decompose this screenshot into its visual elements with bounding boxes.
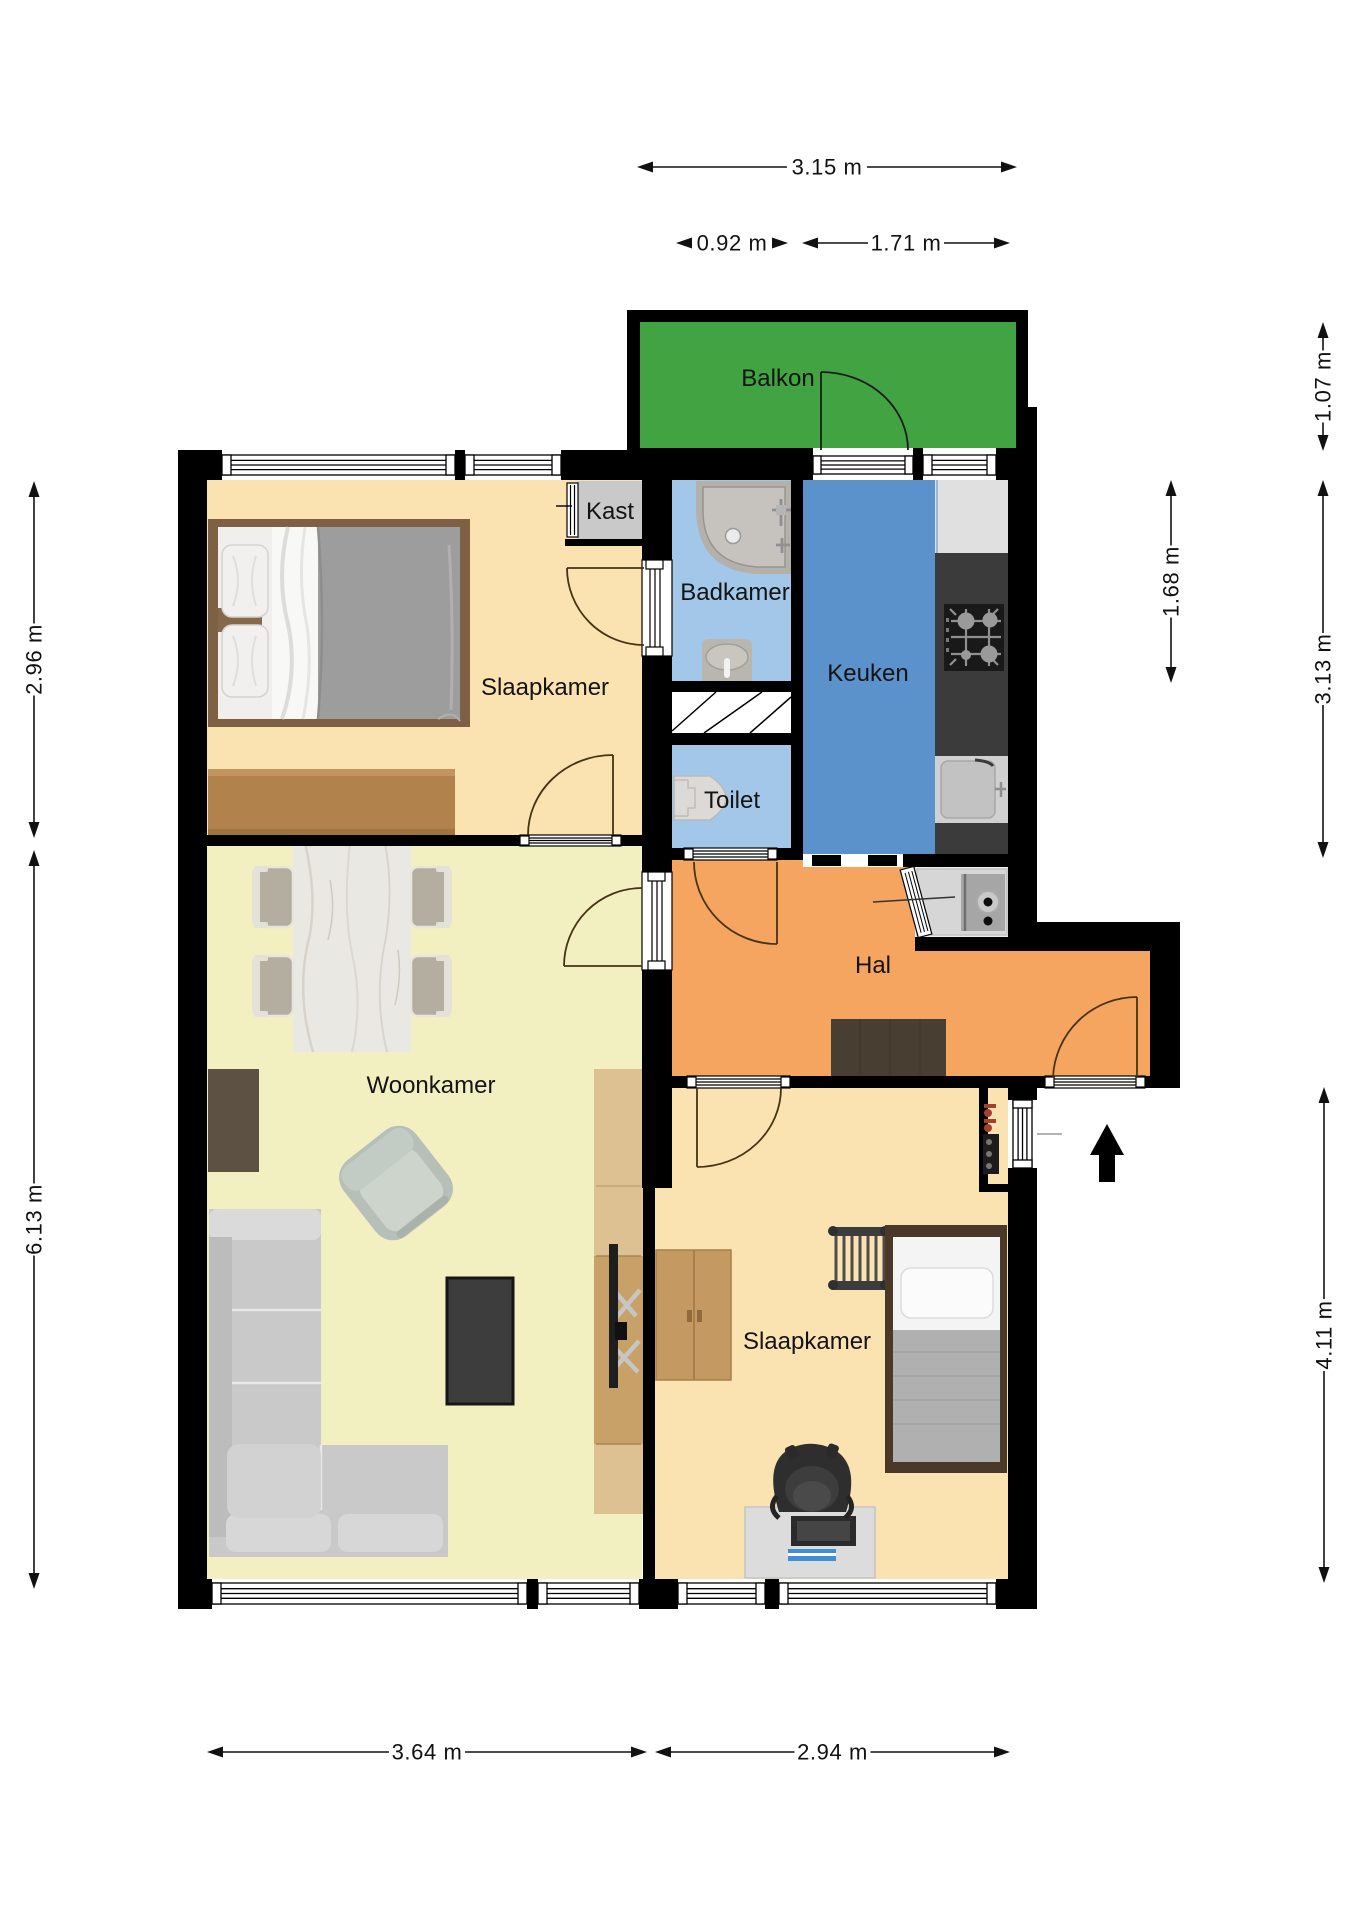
svg-text:2.96 m: 2.96 m — [22, 624, 47, 695]
svg-text:Hal: Hal — [855, 952, 891, 979]
svg-text:1.71 m: 1.71 m — [871, 231, 942, 256]
svg-text:Slaapkamer: Slaapkamer — [743, 1328, 871, 1355]
svg-text:4.11 m: 4.11 m — [1312, 1300, 1337, 1369]
svg-text:3.15 m: 3.15 m — [792, 155, 863, 180]
svg-text:Balkon: Balkon — [741, 365, 814, 392]
svg-text:Slaapkamer: Slaapkamer — [481, 674, 609, 701]
svg-text:Toilet: Toilet — [704, 787, 760, 814]
svg-text:0.92 m: 0.92 m — [697, 231, 768, 256]
svg-text:Keuken: Keuken — [827, 660, 908, 687]
svg-text:3.64 m: 3.64 m — [392, 1740, 463, 1765]
svg-text:3.13 m: 3.13 m — [1311, 634, 1336, 705]
svg-text:Kast: Kast — [586, 498, 634, 525]
svg-text:1.68 m: 1.68 m — [1159, 546, 1184, 617]
svg-text:1.07 m: 1.07 m — [1311, 351, 1336, 422]
svg-text:Woonkamer: Woonkamer — [367, 1072, 496, 1099]
svg-text:Badkamer: Badkamer — [680, 579, 789, 606]
svg-text:2.94 m: 2.94 m — [797, 1740, 868, 1765]
svg-text:6.13 m: 6.13 m — [22, 1184, 47, 1255]
